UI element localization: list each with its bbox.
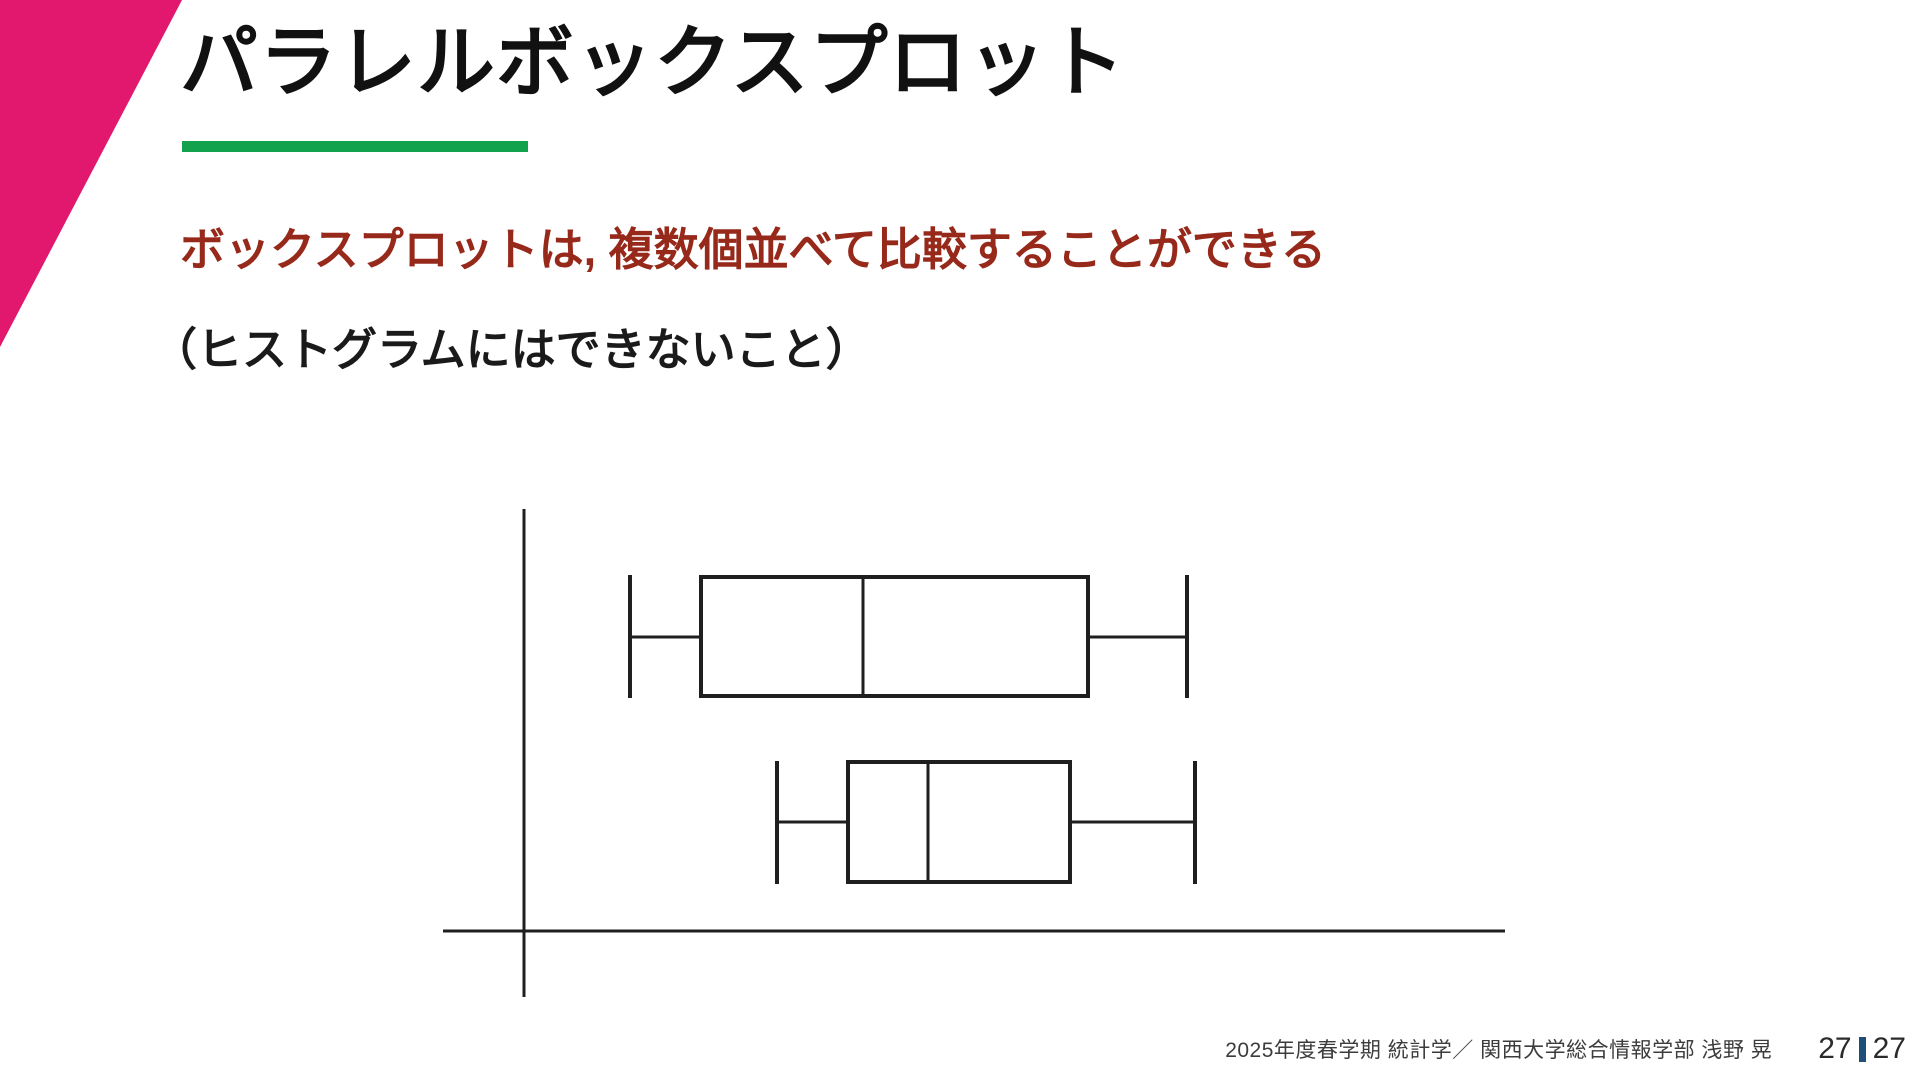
footer-credit: 2025年度春学期 統計学／ 関西大学総合情報学部 浅野 晃 xyxy=(1225,1034,1772,1064)
slide: パラレルボックスプロット ボックスプロットは, 複数個並べて比較することができる… xyxy=(0,0,1920,1080)
boxplot-2-box xyxy=(848,762,1070,882)
page-indicator: 27 27 xyxy=(1818,1032,1906,1066)
page-number-total: 27 xyxy=(1873,1032,1906,1066)
page-number-current: 27 xyxy=(1818,1032,1851,1066)
boxplot-1-box xyxy=(701,577,1088,696)
page-separator-bar xyxy=(1859,1037,1866,1062)
boxplot-diagram xyxy=(0,0,1920,1080)
footer: 2025年度春学期 統計学／ 関西大学総合情報学部 浅野 晃 27 27 xyxy=(1225,1032,1906,1066)
